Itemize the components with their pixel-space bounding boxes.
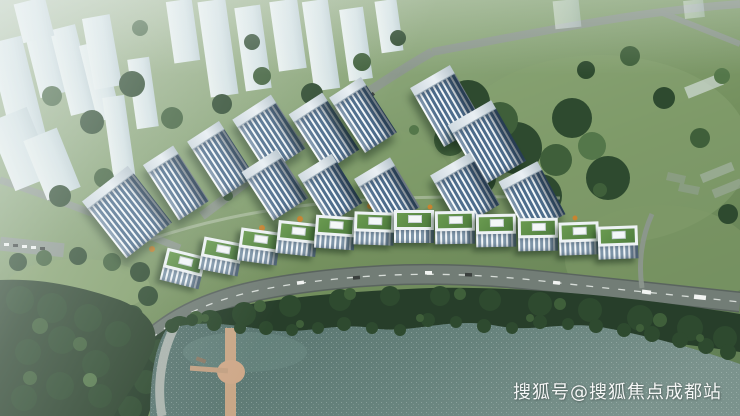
rowhouse-facade [476, 234, 516, 248]
rowhouse [353, 211, 394, 245]
rowhouse-roof-frame [315, 215, 356, 238]
rowhouse-roof-frame [354, 211, 395, 232]
rowhouse [314, 215, 356, 251]
roof-skylight [178, 256, 194, 267]
rowhouse [597, 225, 638, 259]
roof-skylight [216, 244, 231, 255]
residential-tower [298, 154, 363, 224]
roof-skylight [329, 221, 344, 230]
rowhouse-facade [518, 238, 558, 252]
rowhouse [275, 220, 318, 257]
rowhouse-roof-frame [394, 210, 434, 230]
green-roof [479, 217, 513, 232]
roof-skylight [612, 231, 626, 239]
rowhouse-facade [559, 241, 599, 255]
rowhouse [237, 227, 281, 265]
green-roof [280, 223, 315, 240]
rowhouse-facade [314, 235, 355, 251]
rowhouse-roof-frame [597, 225, 638, 246]
rowhouse-facade [598, 245, 638, 259]
green-roof [242, 231, 278, 250]
rowhouse-facade [353, 231, 393, 245]
rowhouse-facade [435, 231, 475, 245]
roof-skylight [490, 219, 504, 227]
green-roof [357, 214, 391, 229]
green-roof [438, 214, 472, 229]
rowhouse [435, 211, 476, 245]
rowhouse-facade [275, 240, 316, 257]
rowhouse-roof-frame [518, 218, 558, 239]
rowhouse-roof-frame [435, 211, 475, 232]
rowhouse-facade [394, 230, 434, 243]
green-roof [562, 224, 596, 239]
residential-tower [242, 149, 309, 221]
green-roof [397, 213, 431, 227]
watermark-text: 搜狐号@搜狐焦点成都站 [513, 378, 722, 404]
rowhouse [518, 218, 559, 252]
green-roof [521, 221, 555, 236]
roof-skylight [291, 226, 306, 235]
green-roof [318, 218, 353, 234]
roof-skylight [408, 215, 422, 223]
roof-skylight [254, 234, 269, 244]
rowhouse [558, 221, 599, 255]
rowhouse-roof-frame [476, 214, 516, 235]
rowhouse [476, 214, 517, 248]
buildings-layer [0, 0, 740, 416]
roof-skylight [449, 216, 463, 224]
roof-skylight [532, 223, 546, 231]
roof-skylight [573, 227, 587, 235]
green-roof [601, 228, 635, 243]
roof-skylight [368, 217, 382, 225]
aerial-rendering-image: 搜狐号@搜狐焦点成都站 [0, 0, 740, 416]
rowhouse [394, 210, 434, 243]
rowhouse-roof-frame [558, 221, 599, 242]
